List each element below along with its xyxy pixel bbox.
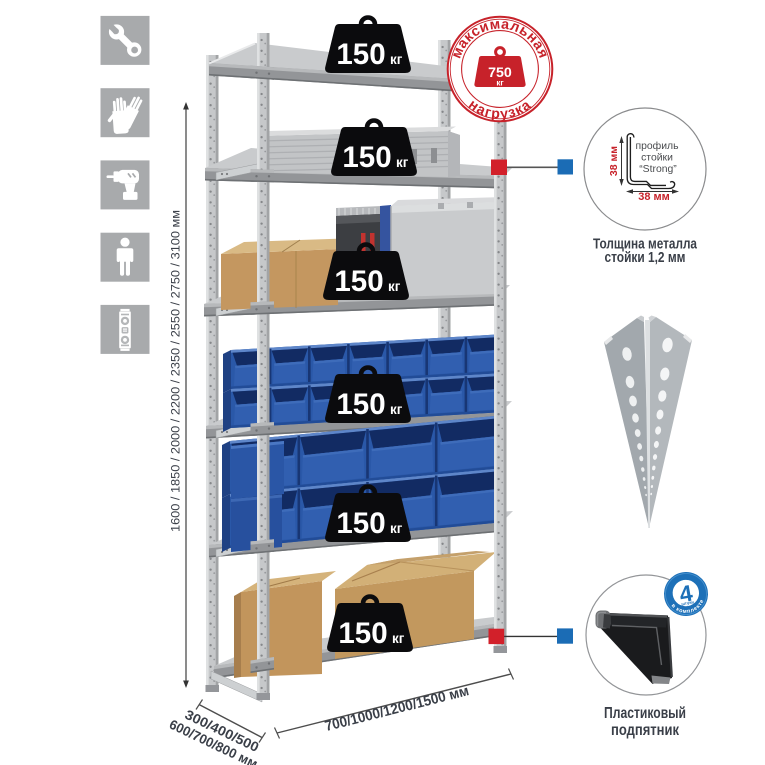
svg-text:1600 / 1850 / 2000 / 2200 / 23: 1600 / 1850 / 2000 / 2200 / 2350 / 2550 …	[169, 210, 183, 532]
svg-text:38 мм: 38 мм	[608, 146, 620, 176]
svg-text:Пластиковый: Пластиковый	[604, 705, 686, 722]
svg-text:“Strong”: “Strong”	[639, 164, 677, 175]
svg-text:профиль: профиль	[635, 140, 678, 152]
svg-text:38 мм: 38 мм	[638, 191, 670, 203]
svg-text:кг: кг	[496, 79, 504, 88]
svg-text:стойки 1,2 мм: стойки 1,2 мм	[605, 250, 686, 266]
svg-text:стойки: стойки	[641, 153, 673, 164]
svg-text:подпятник: подпятник	[611, 722, 679, 739]
